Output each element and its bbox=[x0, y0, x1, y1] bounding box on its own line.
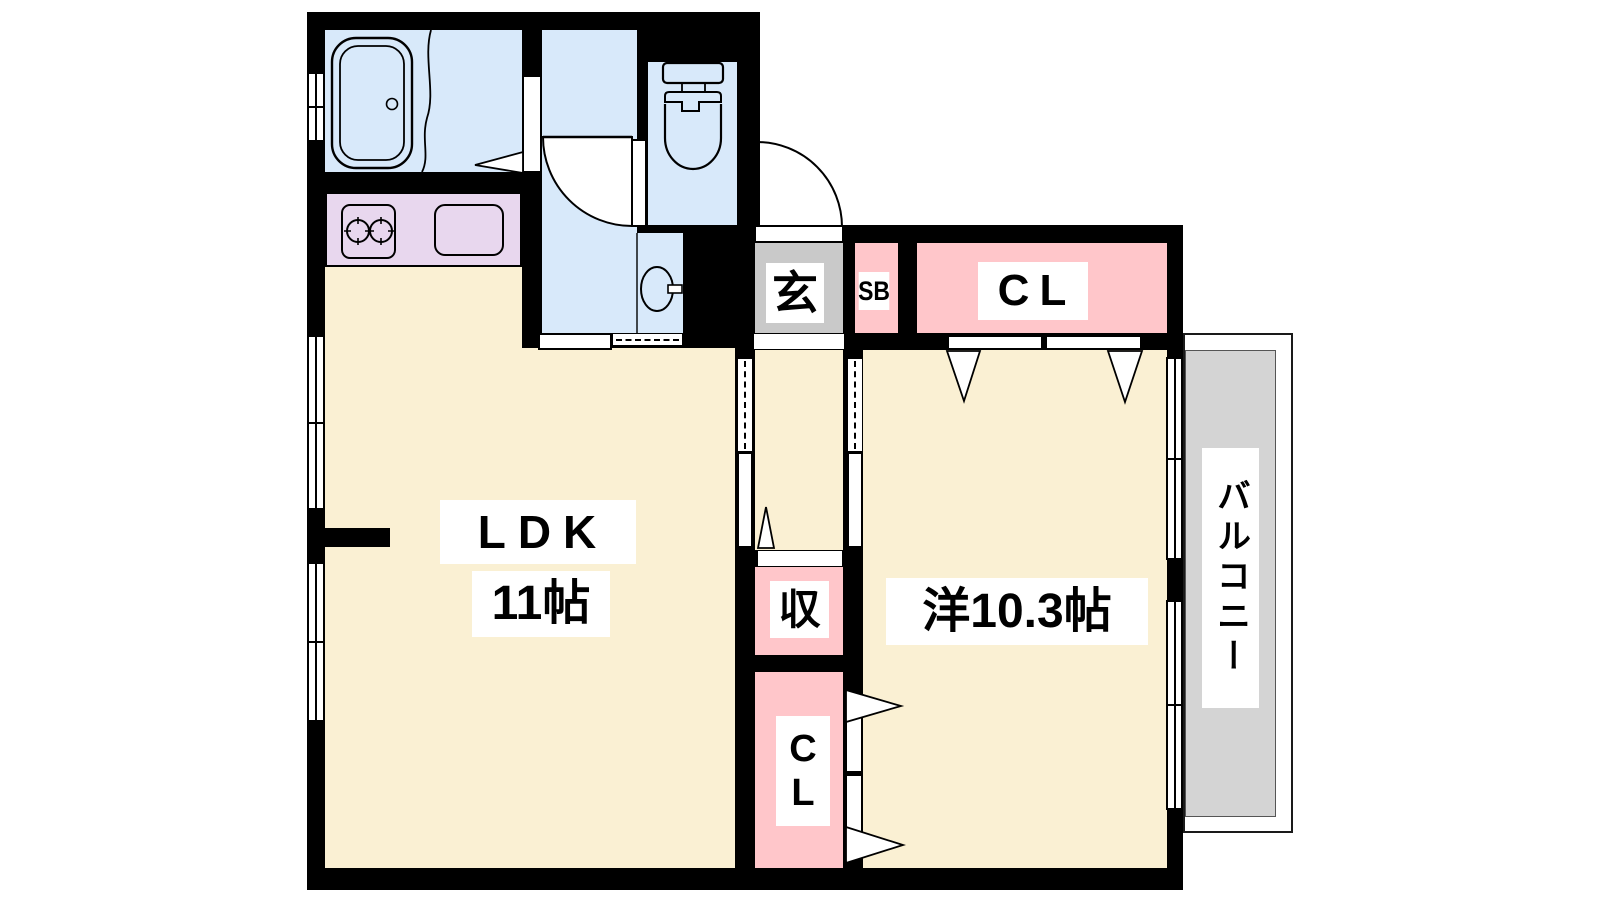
label-closet-lower-c: C bbox=[789, 730, 816, 768]
closet-upper-door-right bbox=[1045, 335, 1142, 350]
window-western-balcony-upper bbox=[1166, 357, 1183, 560]
label-entrance: 玄 bbox=[766, 263, 824, 323]
entrance-door-threshold bbox=[755, 226, 843, 242]
label-closet-lower-l: L bbox=[791, 774, 814, 812]
wall-stub-ldk bbox=[325, 528, 390, 547]
sliding-door-track-western bbox=[847, 358, 863, 452]
room-bathroom bbox=[325, 30, 522, 172]
window-western-balcony-lower bbox=[1166, 600, 1183, 810]
floorplan-canvas: LDK 11帖 洋10.3帖 玄 SB CL 収 C L バルコニー bbox=[0, 0, 1600, 900]
entrance-step bbox=[753, 333, 845, 350]
label-balcony: バルコニー bbox=[1202, 448, 1259, 708]
entrance-door-swing bbox=[757, 142, 842, 227]
window-bathroom-left bbox=[307, 72, 325, 142]
room-washroom bbox=[542, 30, 637, 333]
label-ldk-size: 11帖 bbox=[472, 571, 610, 637]
closet-upper-door-left bbox=[947, 335, 1043, 350]
storage-door-threshold bbox=[757, 550, 843, 567]
sliding-door-washroom bbox=[538, 333, 612, 350]
label-closet-lower: C L bbox=[776, 716, 830, 826]
closet-lower-door-lower bbox=[845, 774, 863, 853]
room-ldk-upper bbox=[325, 267, 522, 350]
label-western-room: 洋10.3帖 bbox=[886, 578, 1148, 645]
window-ldk-left-lower bbox=[307, 562, 325, 722]
kitchen-counter bbox=[325, 192, 522, 267]
room-toilet bbox=[648, 62, 737, 225]
label-shoe-box: SB bbox=[859, 272, 890, 310]
closet-lower-door-upper bbox=[845, 695, 863, 773]
label-closet-upper: CL bbox=[978, 262, 1088, 320]
sliding-door-track-washroom bbox=[612, 333, 683, 346]
label-storage: 収 bbox=[770, 581, 829, 638]
label-ldk: LDK bbox=[440, 500, 636, 564]
sliding-door-western bbox=[847, 452, 863, 548]
door-bathroom bbox=[522, 75, 542, 173]
window-ldk-left-upper bbox=[307, 335, 325, 510]
hallway bbox=[755, 350, 843, 550]
room-basin-alcove bbox=[637, 233, 683, 333]
sliding-door-ldk bbox=[737, 452, 753, 548]
sliding-door-track-ldk bbox=[737, 358, 753, 452]
